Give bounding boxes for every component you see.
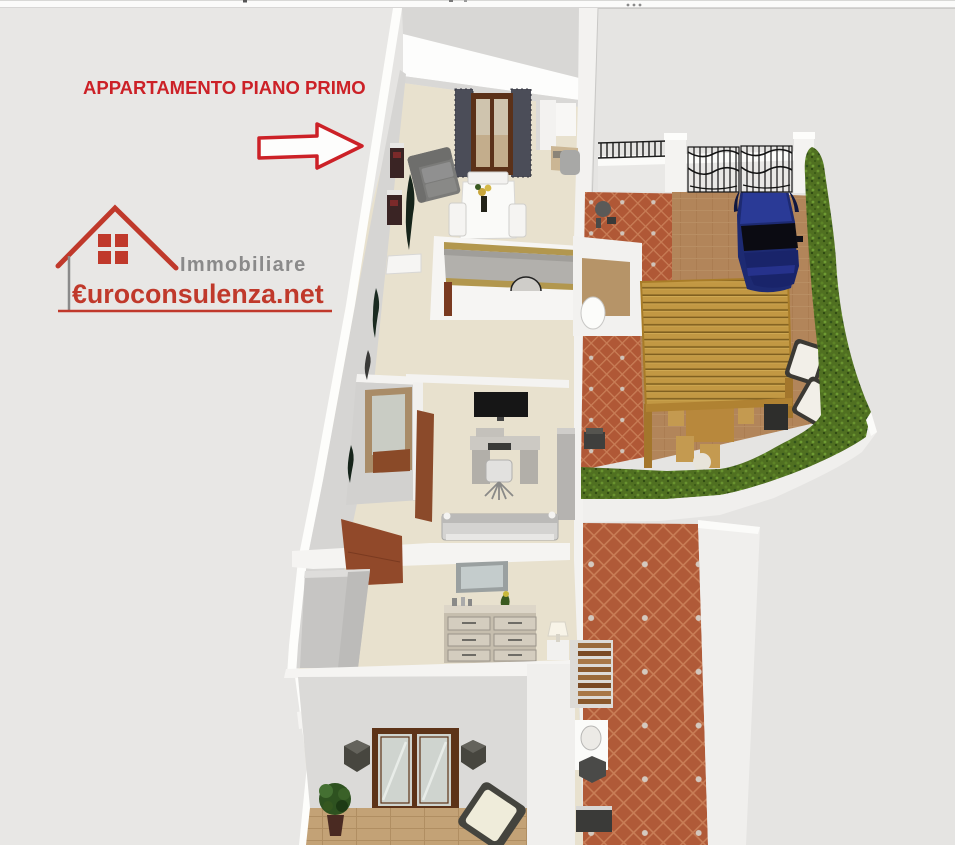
svg-text:€uroconsulenza.net: €uroconsulenza.net (72, 279, 324, 309)
svg-text:APPARTAMENTO PIANO PRIMO: APPARTAMENTO PIANO PRIMO (83, 77, 366, 98)
svg-text:Immobiliare: Immobiliare (180, 254, 307, 276)
